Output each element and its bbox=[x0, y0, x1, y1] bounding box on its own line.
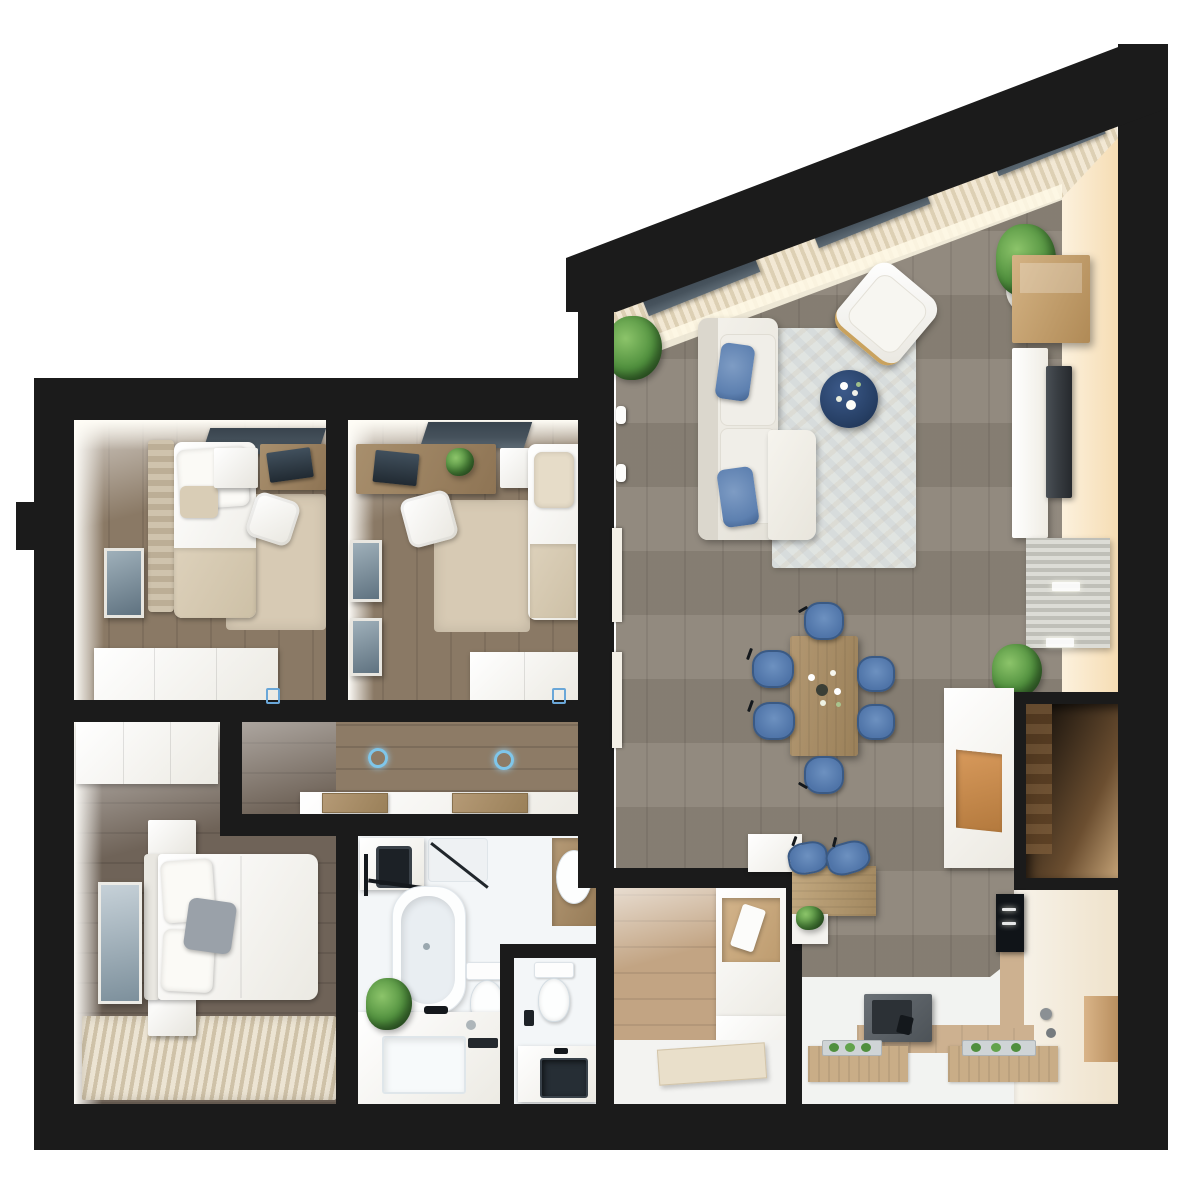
door-handle-1 bbox=[616, 406, 626, 424]
door-leaf-2 bbox=[612, 652, 622, 748]
door-handle-2 bbox=[616, 464, 626, 482]
floor-plan-3d bbox=[0, 0, 1191, 1191]
door-leaf-1 bbox=[612, 528, 622, 622]
overlay bbox=[0, 0, 1191, 1191]
bedroom1-door-mark bbox=[266, 688, 280, 704]
bar-planter bbox=[792, 914, 828, 944]
bedroom2-door-mark bbox=[552, 688, 566, 704]
